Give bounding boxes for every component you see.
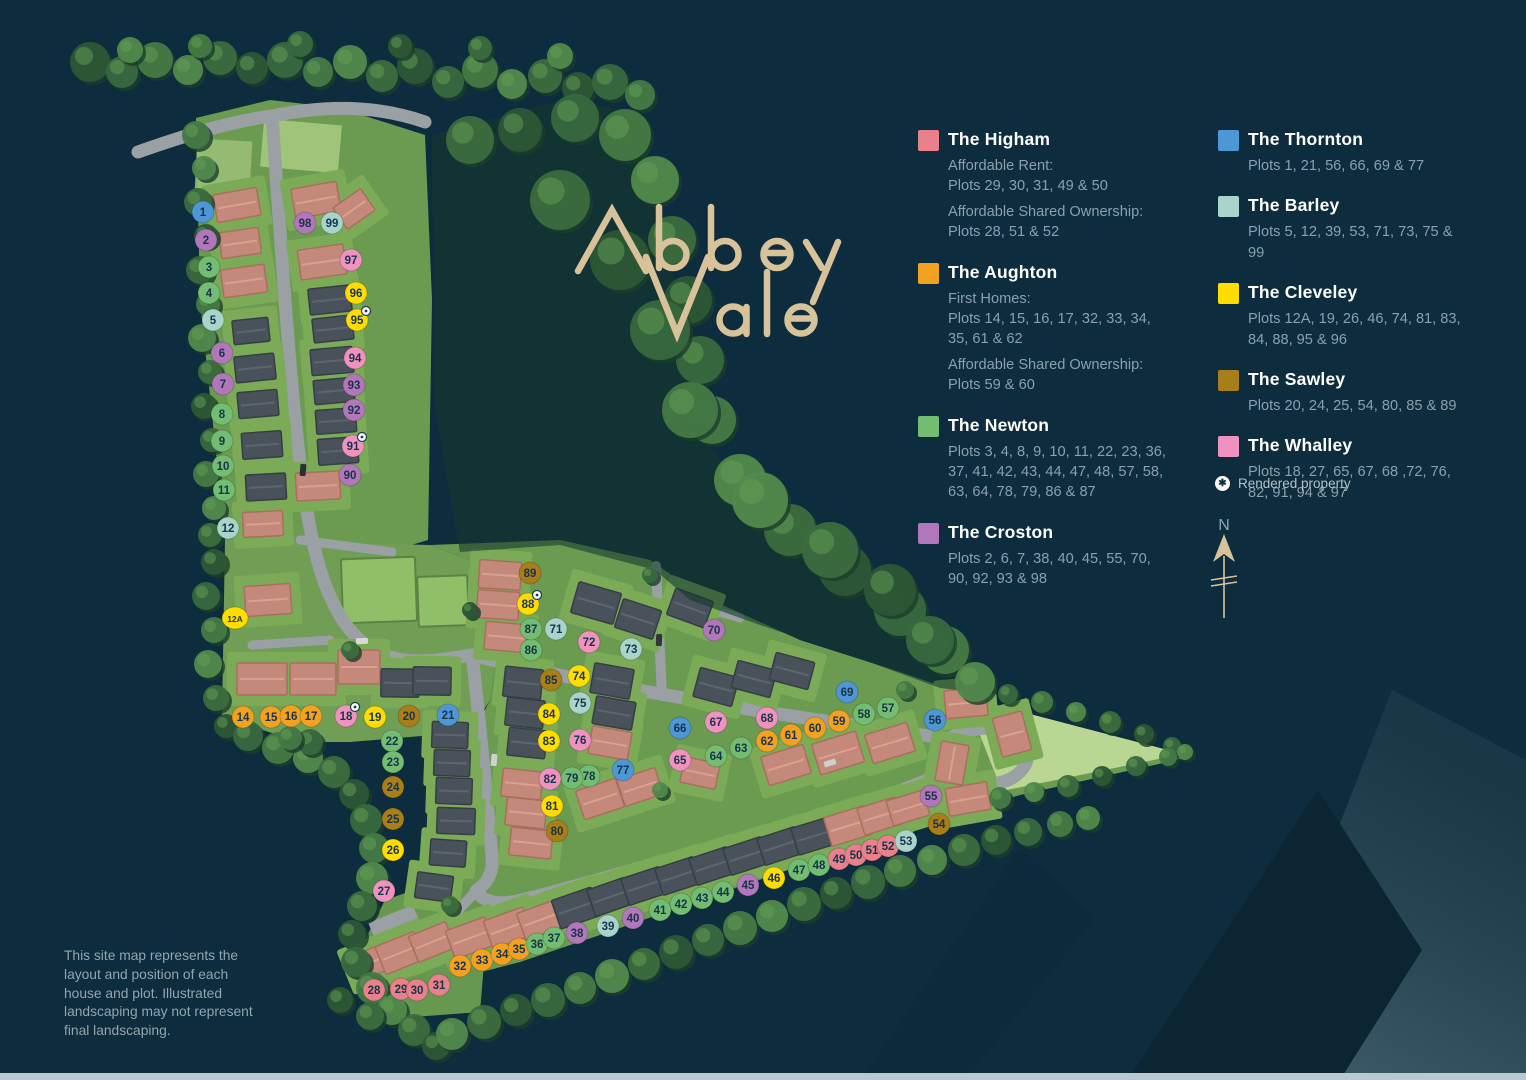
tree-highlight xyxy=(760,904,774,918)
tree-highlight xyxy=(204,620,216,632)
plot-number: 12 xyxy=(222,523,235,535)
plot-marker-75[interactable]: 75 xyxy=(569,692,591,714)
plot-marker-57[interactable]: 57 xyxy=(877,697,899,719)
legend-item-sawley: The SawleyPlots 20, 24, 25, 54, 80, 85 &… xyxy=(1218,368,1468,416)
rendered-dot-center xyxy=(354,706,357,709)
plot-number: 56 xyxy=(929,715,942,727)
plot-marker-26[interactable]: 26 xyxy=(382,839,404,861)
plot-marker-64[interactable]: 64 xyxy=(705,745,727,767)
tree-highlight xyxy=(1137,727,1146,736)
plot-marker-10[interactable]: 10 xyxy=(212,455,234,477)
thornton-color-swatch xyxy=(1218,130,1239,151)
plot-numbers: Plots 29, 30, 31, 49 & 50 xyxy=(948,176,1168,196)
tree-highlight xyxy=(464,604,471,611)
tree-highlight xyxy=(443,898,451,906)
tree-highlight xyxy=(436,70,450,84)
car-icon xyxy=(656,634,662,646)
tree-highlight xyxy=(1161,750,1169,758)
plot-number: 80 xyxy=(551,826,564,838)
plot-marker-63[interactable]: 63 xyxy=(730,737,752,759)
tree-highlight xyxy=(1179,746,1186,753)
house-type-name: The Whalley xyxy=(1248,434,1468,457)
plot-marker-8[interactable]: 8 xyxy=(211,403,233,425)
plot-marker-30[interactable]: 30 xyxy=(406,979,428,1001)
plot-marker-33[interactable]: 33 xyxy=(471,949,493,971)
tree-highlight xyxy=(739,479,764,504)
aughton-color-swatch xyxy=(918,263,939,284)
tree-highlight xyxy=(1018,822,1031,835)
tree-highlight xyxy=(638,308,665,335)
tree-highlight xyxy=(240,56,254,70)
plot-marker-59[interactable]: 59 xyxy=(828,710,850,732)
roof-ridge xyxy=(384,683,416,684)
plot-marker-94[interactable]: 94 xyxy=(344,347,366,369)
plot-marker-53[interactable]: 53 xyxy=(895,830,917,852)
plot-number: 65 xyxy=(674,755,687,767)
plot-number: 59 xyxy=(833,716,846,728)
plot-marker-79[interactable]: 79 xyxy=(561,767,583,789)
plot-marker-11[interactable]: 11 xyxy=(213,479,235,501)
tree-highlight xyxy=(120,40,132,52)
plot-marker-17[interactable]: 17 xyxy=(300,705,322,727)
plot-marker-4[interactable]: 4 xyxy=(198,282,220,304)
plot-number: 43 xyxy=(696,893,709,905)
plot-number: 49 xyxy=(833,854,846,866)
plot-number: 30 xyxy=(411,985,424,997)
tree-highlight xyxy=(663,939,678,954)
plot-list-section: Plots 20, 24, 25, 54, 80, 85 & 89 xyxy=(1248,396,1468,416)
plot-number: 97 xyxy=(345,255,358,267)
tree-highlight xyxy=(343,783,357,797)
tree-highlight xyxy=(196,464,208,476)
tree-highlight xyxy=(960,667,978,685)
plot-number: 89 xyxy=(524,568,537,580)
plot-number: 82 xyxy=(544,774,557,786)
plot-marker-32[interactable]: 32 xyxy=(449,955,471,977)
tree-highlight xyxy=(191,37,202,48)
plot-number: 40 xyxy=(627,913,640,925)
tree-highlight xyxy=(194,396,206,408)
plot-number: 72 xyxy=(583,637,596,649)
plot-number: 27 xyxy=(378,886,391,898)
tree-highlight xyxy=(402,1018,416,1032)
tenure-label: Affordable Rent: xyxy=(948,156,1168,176)
plot-list-section: Plots 1, 21, 56, 66, 69 & 77 xyxy=(1248,156,1468,176)
plot-list-section: Plots 3, 4, 8, 9, 10, 11, 22, 23, 36, 37… xyxy=(948,442,1168,503)
legend-item-whalley: The WhalleyPlots 18, 27, 65, 67, 68 ,72,… xyxy=(1218,434,1468,503)
plot-marker-62[interactable]: 62 xyxy=(756,730,778,752)
plot-marker-45[interactable]: 45 xyxy=(737,874,759,896)
tree-highlight xyxy=(985,829,999,843)
plot-marker-54[interactable]: 54 xyxy=(928,813,950,835)
tree-highlight xyxy=(1001,687,1010,696)
legend-item-thornton: The ThorntonPlots 1, 21, 56, 66, 69 & 77 xyxy=(1218,128,1468,176)
plot-marker-74[interactable]: 74 xyxy=(568,665,590,687)
plot-marker-25[interactable]: 25 xyxy=(382,808,404,830)
plot-number: 11 xyxy=(218,485,231,497)
plot-number: 18 xyxy=(340,711,353,723)
tree-highlight xyxy=(898,683,906,691)
tree-highlight xyxy=(1069,705,1078,714)
tree-highlight xyxy=(952,838,966,852)
plot-number: 48 xyxy=(813,860,826,872)
plot-marker-96[interactable]: 96 xyxy=(345,282,367,304)
tree-highlight xyxy=(1165,739,1173,747)
tree-highlight xyxy=(921,849,935,863)
car-icon xyxy=(299,464,306,476)
plot-marker-19[interactable]: 19 xyxy=(364,706,386,728)
plot-marker-67[interactable]: 67 xyxy=(705,711,727,733)
plot-marker-43[interactable]: 43 xyxy=(691,887,713,909)
plot-number: 57 xyxy=(882,703,895,715)
plot-number: 63 xyxy=(735,743,748,755)
roof-ridge xyxy=(416,681,448,682)
plot-number: 3 xyxy=(206,262,212,274)
plot-marker-69[interactable]: 69 xyxy=(836,681,858,703)
plot-marker-48[interactable]: 48 xyxy=(808,854,830,876)
plot-marker-41[interactable]: 41 xyxy=(649,899,671,921)
plot-number: 98 xyxy=(299,218,312,230)
roof-ridge xyxy=(435,734,465,735)
plot-marker-12[interactable]: 12 xyxy=(217,517,239,539)
plot-marker-97[interactable]: 97 xyxy=(340,249,362,271)
tree-highlight xyxy=(201,526,212,537)
tree-highlight xyxy=(195,159,206,170)
plot-marker-68[interactable]: 68 xyxy=(756,707,778,729)
plot-number: 76 xyxy=(574,735,587,747)
plot-marker-84[interactable]: 84 xyxy=(538,703,560,725)
cleveley-color-swatch xyxy=(1218,283,1239,304)
tree-highlight xyxy=(912,622,934,644)
plot-number: 60 xyxy=(809,723,822,735)
plot-number: 88 xyxy=(522,599,535,611)
plot-number: 5 xyxy=(210,315,217,327)
tree-highlight xyxy=(192,328,205,341)
plot-number: 39 xyxy=(602,921,615,933)
plot-number: 33 xyxy=(476,955,489,967)
tree-highlight xyxy=(1129,759,1138,768)
tree-highlight xyxy=(177,59,191,73)
plot-number: 8 xyxy=(219,409,226,421)
plot-number: 78 xyxy=(583,771,596,783)
tree-highlight xyxy=(342,924,355,937)
tree-highlight xyxy=(888,859,902,873)
tree-highlight xyxy=(568,976,582,990)
plot-marker-92[interactable]: 92 xyxy=(343,399,365,421)
tree-highlight xyxy=(110,60,124,74)
plot-list-section: Affordable Shared Ownership:Plots 28, 51… xyxy=(948,202,1168,243)
plot-marker-27[interactable]: 27 xyxy=(373,880,395,902)
plot-marker-38[interactable]: 38 xyxy=(566,922,588,944)
plot-number: 50 xyxy=(850,850,863,862)
plot-marker-6[interactable]: 6 xyxy=(211,342,233,364)
plot-marker-12A[interactable]: 12A xyxy=(222,607,248,629)
tree-highlight xyxy=(206,688,218,700)
plot-marker-23[interactable]: 23 xyxy=(382,751,404,773)
plot-marker-39[interactable]: 39 xyxy=(597,915,619,937)
plot-number: 4 xyxy=(206,288,213,300)
plot-list-section: Affordable Shared Ownership:Plots 59 & 6… xyxy=(948,355,1168,396)
plot-marker-46[interactable]: 46 xyxy=(763,867,785,889)
tree-highlight xyxy=(272,47,288,63)
plot-marker-71[interactable]: 71 xyxy=(545,618,567,640)
plot-numbers: Plots 28, 51 & 52 xyxy=(948,222,1168,242)
plot-marker-77[interactable]: 77 xyxy=(612,759,634,781)
tree-highlight xyxy=(330,990,342,1002)
legend-item-newton: The NewtonPlots 3, 4, 8, 9, 10, 11, 22, … xyxy=(918,414,1168,503)
bottom-edge-strip xyxy=(0,1073,1526,1080)
plot-numbers: Plots 20, 24, 25, 54, 80, 85 & 89 xyxy=(1248,396,1468,416)
plot-marker-20[interactable]: 20 xyxy=(398,705,420,727)
plot-number: 23 xyxy=(387,757,400,769)
car-icon xyxy=(490,754,497,766)
plot-marker-58[interactable]: 58 xyxy=(853,703,875,725)
house-type-name: The Thornton xyxy=(1248,128,1468,151)
tree-highlight xyxy=(532,63,547,78)
tree-highlight xyxy=(198,654,211,667)
plot-number: 73 xyxy=(625,644,638,656)
tree-highlight xyxy=(370,64,384,78)
plot-marker-24[interactable]: 24 xyxy=(382,776,404,798)
legend-item-cleveley: The CleveleyPlots 12A, 19, 26, 46, 74, 8… xyxy=(1218,281,1468,350)
legend-item-higham: The HighamAffordable Rent:Plots 29, 30, … xyxy=(918,128,1168,243)
tree-highlight xyxy=(809,529,834,554)
plot-number: 99 xyxy=(326,218,339,230)
plot-number: 75 xyxy=(574,698,587,710)
tree-highlight xyxy=(637,162,659,184)
tree-highlight xyxy=(426,1036,439,1049)
plot-number: 16 xyxy=(285,711,298,723)
tree-highlight xyxy=(504,998,518,1012)
tree-highlight xyxy=(855,869,870,884)
plot-number: 54 xyxy=(933,819,946,831)
legend-column-1: The HighamAffordable Rent:Plots 29, 30, … xyxy=(918,128,1168,608)
tenure-label: First Homes: xyxy=(948,289,1168,309)
plot-list-section: First Homes:Plots 14, 15, 16, 17, 32, 33… xyxy=(948,289,1168,350)
tree-highlight xyxy=(391,37,402,48)
roof-ridge xyxy=(439,790,469,791)
tree-highlight xyxy=(360,1006,373,1019)
plot-number: 45 xyxy=(742,880,755,892)
plot-marker-2[interactable]: 2 xyxy=(195,229,217,251)
plot-marker-66[interactable]: 66 xyxy=(669,717,691,739)
tree-highlight xyxy=(217,717,228,728)
plot-number: 22 xyxy=(386,736,399,748)
plot-number: 67 xyxy=(710,717,723,729)
house-type-name: The Higham xyxy=(948,128,1168,151)
plot-numbers: Plots 14, 15, 16, 17, 32, 33, 34, 35, 61… xyxy=(948,309,1168,350)
house-type-name: The Aughton xyxy=(948,261,1168,284)
tree-highlight xyxy=(440,1022,454,1036)
roof-ridge xyxy=(440,820,472,821)
sawley-color-swatch xyxy=(1218,370,1239,391)
house-type-name: The Croston xyxy=(948,521,1168,544)
rendered-dot-center xyxy=(365,310,368,313)
tree-highlight xyxy=(471,1009,486,1024)
plot-number: 74 xyxy=(573,671,586,683)
tree-highlight xyxy=(281,729,292,740)
plot-marker-99[interactable]: 99 xyxy=(321,212,343,234)
barley-color-swatch xyxy=(1218,196,1239,217)
plot-number: 86 xyxy=(525,645,538,657)
plot-marker-70[interactable]: 70 xyxy=(703,619,725,641)
plot-marker-65[interactable]: 65 xyxy=(669,749,691,771)
plot-number: 10 xyxy=(217,461,230,473)
plot-number: 38 xyxy=(571,928,584,940)
house-type-name: The Cleveley xyxy=(1248,281,1468,304)
disclaimer-text: This site map represents the layout and … xyxy=(64,947,256,1041)
tree-highlight xyxy=(501,73,515,87)
tree-highlight xyxy=(599,963,614,978)
plot-number: 31 xyxy=(433,980,446,992)
tree-highlight xyxy=(669,389,694,414)
tree-highlight xyxy=(290,34,302,46)
plot-number: 32 xyxy=(454,961,467,973)
plot-number: 70 xyxy=(708,625,721,637)
plot-number: 15 xyxy=(265,712,278,724)
tree-highlight xyxy=(791,891,806,906)
plot-marker-82[interactable]: 82 xyxy=(539,768,561,790)
plot-marker-14[interactable]: 14 xyxy=(232,706,254,728)
whalley-color-swatch xyxy=(1218,436,1239,457)
plot-number: 79 xyxy=(566,773,579,785)
road-west-lane xyxy=(252,640,330,645)
tree-highlight xyxy=(196,586,209,599)
plot-marker-89[interactable]: 89 xyxy=(519,562,541,584)
plot-marker-22[interactable]: 22 xyxy=(381,730,403,752)
plot-marker-90[interactable]: 90 xyxy=(339,464,361,486)
plot-number: 47 xyxy=(793,865,806,877)
plot-list-section: Plots 2, 6, 7, 38, 40, 45, 55, 70, 90, 9… xyxy=(948,549,1168,590)
plot-number: 52 xyxy=(882,841,895,853)
plot-number: 14 xyxy=(237,712,250,724)
plot-marker-37[interactable]: 37 xyxy=(543,927,565,949)
plot-marker-16[interactable]: 16 xyxy=(280,705,302,727)
tree-highlight xyxy=(644,569,651,576)
rendered-property-key: ✱ Rendered property xyxy=(1215,476,1351,491)
plot-marker-73[interactable]: 73 xyxy=(620,638,642,660)
tree-highlight xyxy=(538,178,565,205)
tree-highlight xyxy=(322,760,336,774)
plot-marker-93[interactable]: 93 xyxy=(343,374,365,396)
tree-highlight xyxy=(606,116,629,139)
plot-number: 6 xyxy=(219,348,225,360)
tree-highlight xyxy=(1027,785,1036,794)
plot-number: 53 xyxy=(900,836,913,848)
plot-marker-28[interactable]: 28 xyxy=(363,979,385,1001)
plot-number: 24 xyxy=(387,782,400,794)
plot-number: 46 xyxy=(768,873,781,885)
tree-highlight xyxy=(871,571,894,594)
house-type-name: The Barley xyxy=(1248,194,1468,217)
plot-number: 90 xyxy=(344,470,357,482)
plot-marker-31[interactable]: 31 xyxy=(428,974,450,996)
plot-marker-81[interactable]: 81 xyxy=(541,795,563,817)
plot-numbers: Plots 5, 12, 39, 53, 71, 73, 75 & 99 xyxy=(1248,222,1468,263)
plot-number: 28 xyxy=(368,985,381,997)
rendered-property-icon: ✱ xyxy=(1215,476,1230,491)
plot-marker-47[interactable]: 47 xyxy=(788,859,810,881)
plot-marker-9[interactable]: 9 xyxy=(211,430,233,452)
plot-marker-87[interactable]: 87 xyxy=(520,618,542,640)
plot-number: 34 xyxy=(496,949,509,961)
plot-number: 20 xyxy=(403,711,416,723)
plot-number: 17 xyxy=(305,711,318,723)
plot-number: 87 xyxy=(525,624,538,636)
newton-color-swatch xyxy=(918,416,939,437)
tree-highlight xyxy=(363,837,377,851)
tree-highlight xyxy=(343,643,351,651)
plot-numbers: Plots 3, 4, 8, 9, 10, 11, 22, 23, 36, 37… xyxy=(948,442,1168,503)
plot-marker-7[interactable]: 7 xyxy=(212,373,234,395)
plot-number: 42 xyxy=(675,899,688,911)
plot-marker-56[interactable]: 56 xyxy=(924,709,946,731)
plot-marker-60[interactable]: 60 xyxy=(804,717,826,739)
plot-number: 2 xyxy=(203,235,209,247)
tree-highlight xyxy=(205,499,216,510)
plot-number: 44 xyxy=(717,887,730,899)
tree-highlight xyxy=(360,866,374,880)
plot-marker-76[interactable]: 76 xyxy=(569,729,591,751)
tree-highlight xyxy=(654,784,661,791)
rendered-property-label: Rendered property xyxy=(1238,476,1351,491)
croston-color-swatch xyxy=(918,523,939,544)
rendered-dot-center xyxy=(361,436,364,439)
plot-marker-40[interactable]: 40 xyxy=(622,907,644,929)
tree-highlight xyxy=(557,100,579,122)
plot-marker-15[interactable]: 15 xyxy=(260,706,282,728)
tree-highlight xyxy=(992,790,1002,800)
plot-marker-3[interactable]: 3 xyxy=(198,256,220,278)
plot-marker-86[interactable]: 86 xyxy=(520,639,542,661)
plot-number: 55 xyxy=(925,791,938,803)
plot-marker-5[interactable]: 5 xyxy=(202,309,224,331)
higham-color-swatch xyxy=(918,130,939,151)
tree-highlight xyxy=(307,61,321,75)
plot-numbers: Plots 2, 6, 7, 38, 40, 45, 55, 70, 90, 9… xyxy=(948,549,1168,590)
tree-highlight xyxy=(629,84,643,98)
plot-marker-80[interactable]: 80 xyxy=(546,820,568,842)
car-icon xyxy=(356,638,368,644)
plot-marker-98[interactable]: 98 xyxy=(294,212,316,234)
legend-item-croston: The CrostonPlots 2, 6, 7, 38, 40, 45, 55… xyxy=(918,521,1168,590)
tree-highlight xyxy=(598,238,625,265)
plot-marker-83[interactable]: 83 xyxy=(538,730,560,752)
plot-marker-1[interactable]: 1 xyxy=(192,201,214,223)
plot-marker-42[interactable]: 42 xyxy=(670,893,692,915)
tree-highlight xyxy=(824,881,838,895)
plot-marker-55[interactable]: 55 xyxy=(920,785,942,807)
plot-numbers: Plots 59 & 60 xyxy=(948,375,1168,395)
plot-number: 7 xyxy=(220,379,226,391)
rendered-dot-center xyxy=(536,594,539,597)
tree-highlight xyxy=(1095,769,1104,778)
tree-highlight xyxy=(550,46,562,58)
plot-marker-44[interactable]: 44 xyxy=(712,881,734,903)
tree-highlight xyxy=(204,552,216,564)
plot-number: 83 xyxy=(543,736,556,748)
tree-highlight xyxy=(727,915,742,930)
plot-marker-61[interactable]: 61 xyxy=(780,724,802,746)
legend-column-2: The ThorntonPlots 1, 21, 56, 66, 69 & 77… xyxy=(1218,128,1468,521)
plot-number: 36 xyxy=(531,939,544,951)
plot-number: 25 xyxy=(387,814,400,826)
plot-marker-21[interactable]: 21 xyxy=(437,704,459,726)
plot-marker-72[interactable]: 72 xyxy=(578,631,600,653)
plot-number: 64 xyxy=(710,751,723,763)
house-type-name: The Newton xyxy=(948,414,1168,437)
plot-marker-85[interactable]: 85 xyxy=(540,669,562,691)
